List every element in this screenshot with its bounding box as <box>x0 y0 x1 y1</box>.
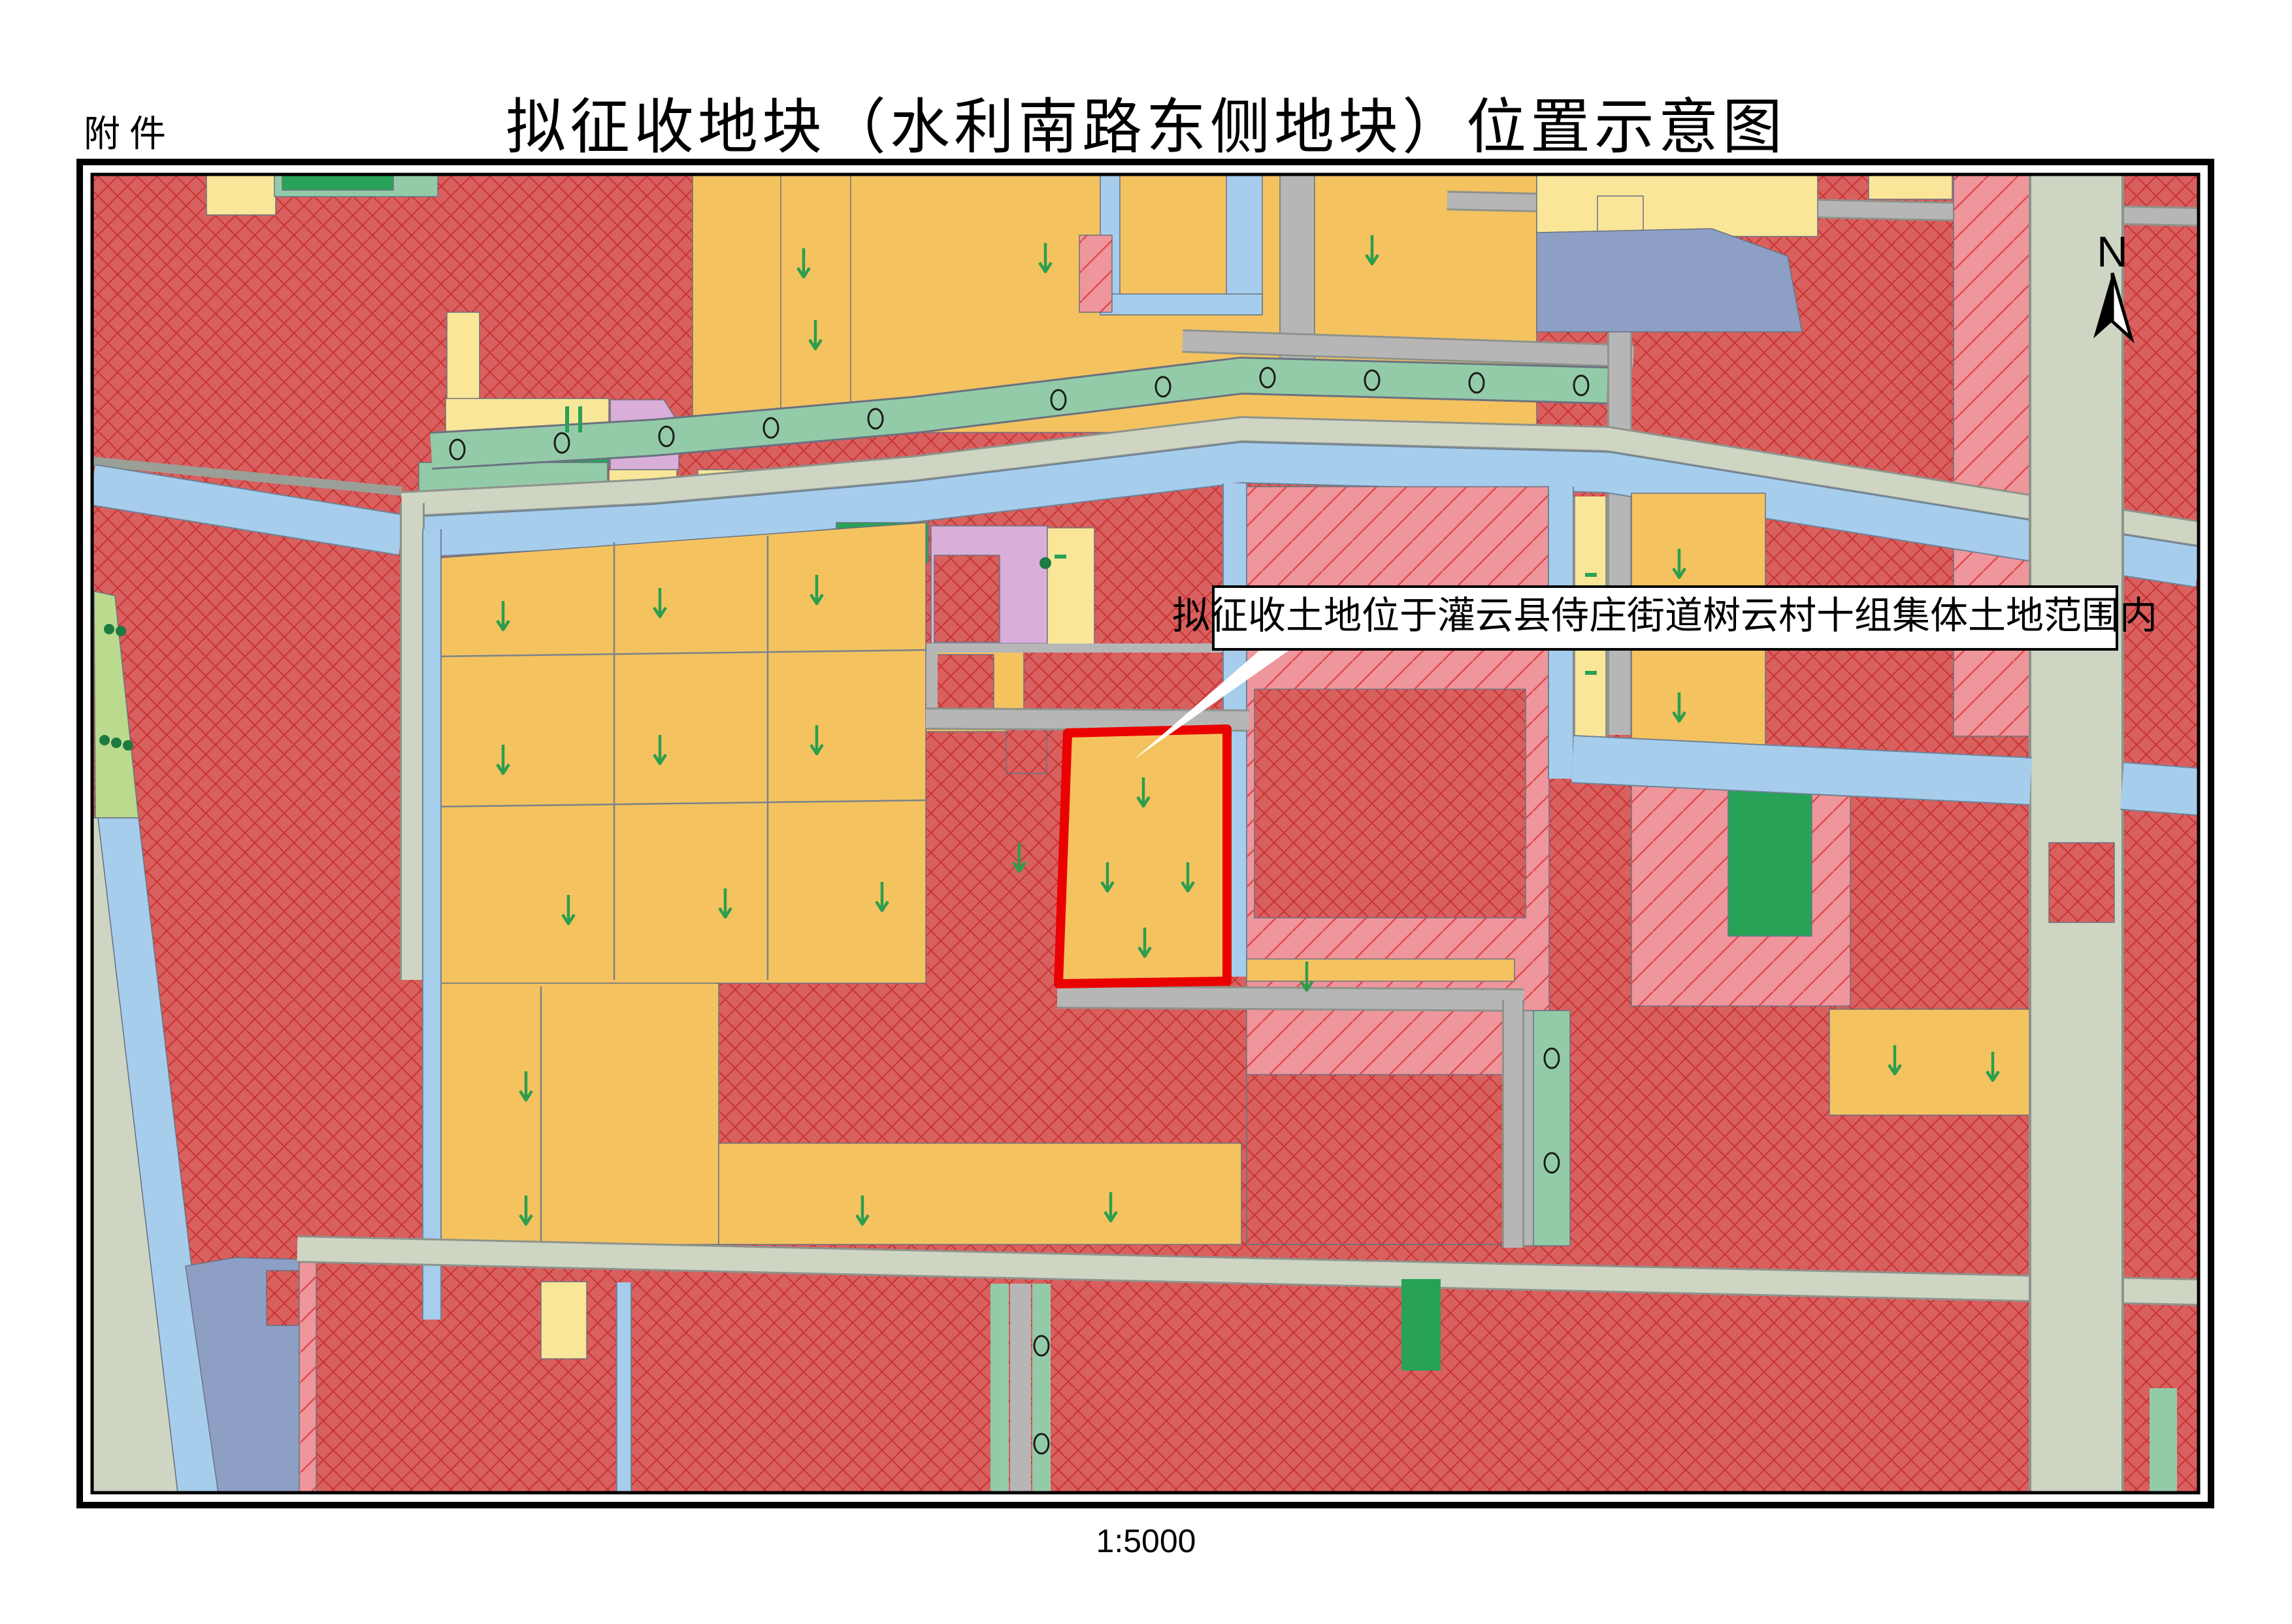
annotation-text: 拟征收土地位于灌云县侍庄街道树云村十组集体土地范围内 <box>1172 594 2157 637</box>
pink-column-topright <box>1954 174 2031 736</box>
page-title: 拟征收地块（水利南路东侧地块）位置示意图 <box>0 78 2292 165</box>
target-plot-outline <box>1058 729 1227 984</box>
green-block-right <box>1728 783 1812 936</box>
pond-parcel <box>1537 174 1818 236</box>
green-dot <box>1040 557 1051 569</box>
target-plot <box>1058 729 1227 984</box>
map-page: 附件 拟征收地块（水利南路东侧地块）位置示意图 <box>0 0 2292 1624</box>
map-content <box>92 174 2199 1493</box>
map-canvas: 拟征收土地位于灌云县侍庄街道树云村十组集体土地范围内 N <box>0 0 2292 1621</box>
annotation-callout: 拟征收土地位于灌云县侍庄街道树云村十组集体土地范围内 <box>1172 587 2157 649</box>
canal-right-horizontal <box>1573 759 2031 781</box>
scale-label: 1:5000 <box>0 1522 2292 1560</box>
north-label: N <box>2097 227 2128 276</box>
